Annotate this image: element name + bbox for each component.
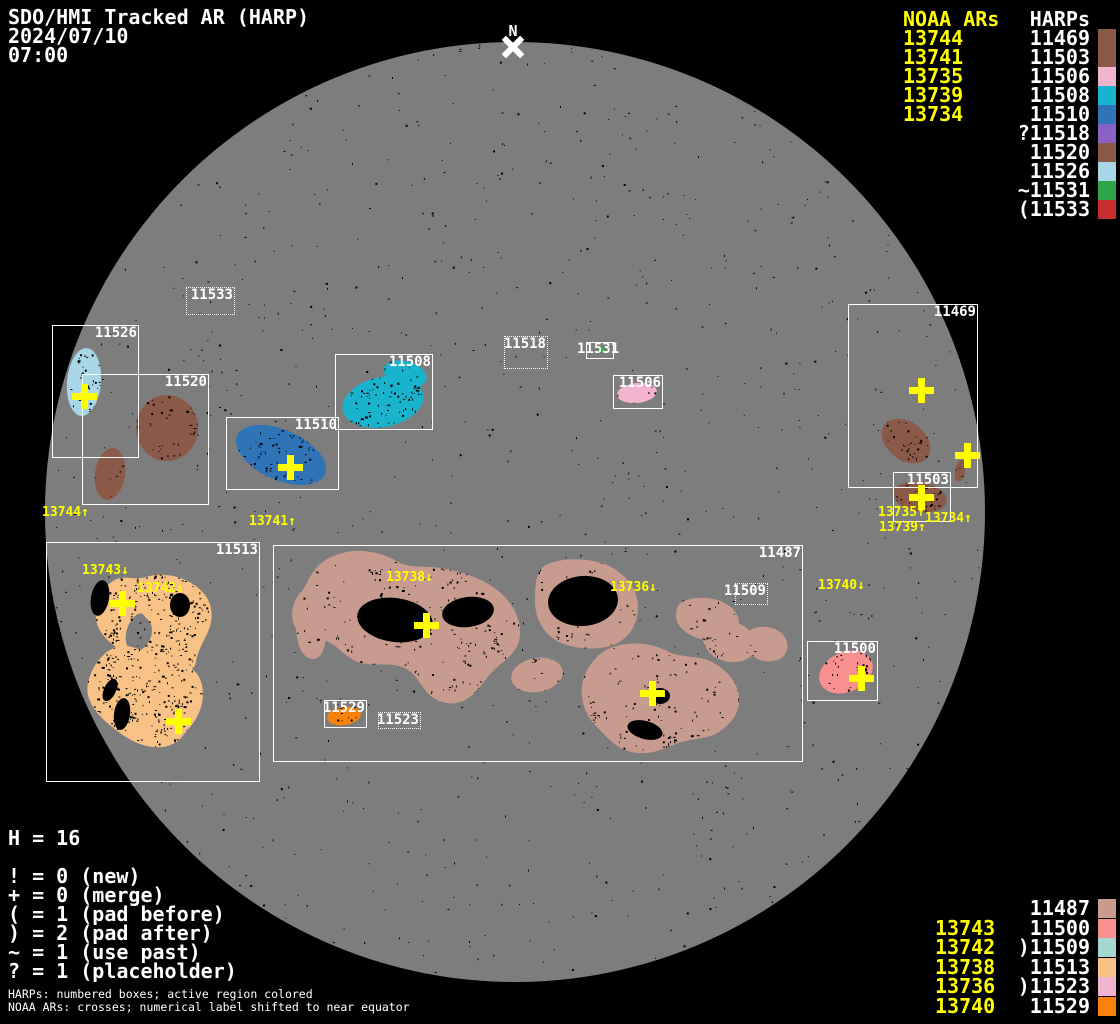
harp-box-label-11518: 11518 (504, 338, 546, 351)
noaa-label-13739: 13739↑ (879, 521, 926, 534)
noaa-cross (909, 378, 934, 403)
harp-box-label-11531: 11531 (577, 343, 619, 356)
harp-color-chip (1098, 124, 1116, 143)
harp-box-11513 (46, 542, 260, 782)
legend-noaa-number: 13740 (935, 997, 999, 1017)
harp-color-chip (1098, 997, 1116, 1016)
noaa-cross (640, 681, 665, 706)
harp-color-chip (1098, 958, 1116, 977)
harp-count: H = 16 (8, 829, 237, 848)
legend-noaa-number (903, 162, 991, 181)
noaa-label-13744: 13744↑ (42, 506, 89, 519)
noaa-label-13740: 13740↓ (818, 579, 865, 592)
harp-box-label-11509: 11509 (724, 585, 766, 598)
harp-box-label-11508: 11508 (389, 356, 431, 369)
harp-color-chip (1098, 181, 1116, 200)
harp-color-chip (1098, 977, 1116, 996)
legend-top-right: NOAA ARs HARPs 1374411469137411150313735… (903, 10, 1116, 219)
footnotes: HARPs: numbered boxes; active region col… (8, 988, 410, 1013)
legend-noaa-number (903, 181, 991, 200)
legend-harp-number: 11529 (999, 997, 1090, 1017)
harp-box-label-11523: 11523 (377, 714, 419, 727)
noaa-label-13736: 13736↓ (610, 581, 657, 594)
harp-box-label-11526: 11526 (95, 327, 137, 340)
noaa-label-13734: 13734↑ (925, 512, 972, 525)
harp-box-label-11520: 11520 (165, 376, 207, 389)
noaa-label-13738: 13738↓ (386, 571, 433, 584)
legend-harp-number: (11533 (991, 200, 1090, 219)
noaa-label-13735: 13735↑ (878, 506, 925, 519)
harp-box-label-11487: 11487 (759, 547, 801, 560)
noaa-cross (414, 613, 439, 638)
north-cross-icon (501, 36, 525, 58)
legend-noaa-number (903, 143, 991, 162)
harp-color-chip (1098, 29, 1116, 48)
noaa-cross (278, 455, 303, 480)
harp-box-label-11500: 11500 (834, 643, 876, 656)
time-label: 07:00 (8, 46, 309, 65)
noaa-label-13742: 13742↓ (137, 582, 184, 595)
harp-color-chip (1098, 162, 1116, 181)
harp-color-chip (1098, 899, 1116, 918)
noaa-cross (72, 384, 97, 409)
harp-box-label-11513: 11513 (216, 544, 258, 557)
footnote-harps: HARPs: numbered boxes; active region col… (8, 988, 410, 1001)
noaa-cross (166, 709, 191, 734)
noaa-label-13741: 13741↑ (249, 515, 296, 528)
legend-row-11533: (11533 (903, 200, 1116, 219)
legend-noaa-number (903, 124, 991, 143)
harp-color-chip (1098, 200, 1116, 219)
harp-color-chip (1098, 938, 1116, 957)
flag-legend: ! = 0 (new)+ = 0 (merge)( = 1 (pad befor… (8, 867, 237, 981)
harp-box-11487 (273, 545, 803, 762)
chip-spacer (1098, 10, 1116, 29)
legend-noaa-number: 13734 (903, 105, 991, 124)
harp-box-label-11506: 11506 (619, 377, 661, 390)
harp-box-label-11533: 11533 (191, 289, 233, 302)
harp-color-chip (1098, 67, 1116, 86)
harp-color-chip (1098, 143, 1116, 162)
noaa-cross (849, 666, 874, 691)
noaa-label-13743: 13743↓ (82, 564, 129, 577)
noaa-cross (110, 591, 135, 616)
footnote-noaa: NOAA ARs: crosses; numerical label shift… (8, 1001, 410, 1014)
harp-color-chip (1098, 105, 1116, 124)
legend-bottom-left: H = 16 ! = 0 (new)+ = 0 (merge)( = 1 (pa… (8, 829, 237, 981)
legend-bottom-right: 11487137431150013742)1150913738115131373… (935, 899, 1116, 1016)
harp-box-label-11469: 11469 (934, 306, 976, 319)
sdo-hmi-harp-frame: 1146911487115001150311506115081150911510… (0, 0, 1120, 1024)
flag-legend-item: ? = 1 (placeholder) (8, 962, 237, 981)
harp-box-label-11529: 11529 (323, 702, 365, 715)
harp-color-chip (1098, 48, 1116, 67)
harp-box-label-11510: 11510 (295, 419, 337, 432)
noaa-cross (955, 443, 980, 468)
legend-noaa-number (903, 200, 991, 219)
header: SDO/HMI Tracked AR (HARP) 2024/07/10 07:… (8, 8, 309, 65)
legend-row-11529: 1374011529 (935, 997, 1116, 1017)
harp-color-chip (1098, 919, 1116, 938)
harp-color-chip (1098, 86, 1116, 105)
